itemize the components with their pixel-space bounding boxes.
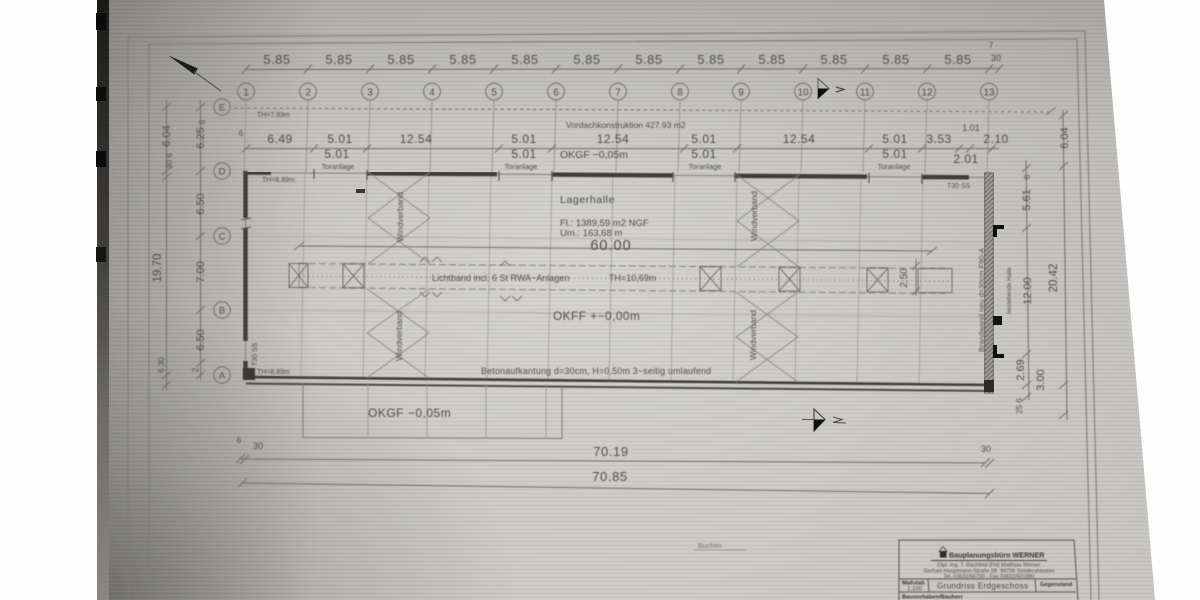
svg-text:3.00: 3.00 bbox=[1035, 369, 1047, 390]
svg-text:5.01: 5.01 bbox=[882, 147, 907, 161]
svg-text:5.85: 5.85 bbox=[635, 52, 662, 67]
svg-text:Vordachkonstruktion 427.93 m2: Vordachkonstruktion 427.93 m2 bbox=[566, 120, 686, 130]
svg-text:TH=10,69m: TH=10,69m bbox=[609, 273, 656, 283]
svg-text:Bauplanungsbüro WERNER: Bauplanungsbüro WERNER bbox=[949, 551, 1045, 560]
svg-text:Bauvorhaben/Bauherr: Bauvorhaben/Bauherr bbox=[902, 595, 964, 600]
svg-text:1: 1 bbox=[243, 88, 249, 99]
svg-text:4: 4 bbox=[429, 88, 435, 99]
svg-text:2.69: 2.69 bbox=[1015, 359, 1027, 380]
svg-text:5.85: 5.85 bbox=[944, 52, 971, 67]
svg-text:5.85: 5.85 bbox=[511, 52, 538, 67]
svg-text:1.01: 1.01 bbox=[962, 123, 980, 133]
svg-text:Windverband: Windverband bbox=[749, 191, 759, 241]
svg-text:TH=8.89m: TH=8.89m bbox=[257, 369, 290, 376]
svg-text:7.00: 7.00 bbox=[195, 261, 207, 282]
svg-text:A: A bbox=[219, 371, 226, 382]
svg-text:20.42: 20.42 bbox=[1048, 264, 1060, 293]
svg-text:6.50: 6.50 bbox=[195, 193, 207, 214]
svg-text:1:100: 1:100 bbox=[907, 587, 923, 593]
svg-text:Brandwand neu d=30cm F90-A: Brandwand neu d=30cm F90-A bbox=[977, 248, 986, 352]
svg-text:5.85: 5.85 bbox=[263, 52, 290, 67]
svg-text:6.25: 6.25 bbox=[195, 127, 207, 148]
svg-text:5.85: 5.85 bbox=[573, 52, 600, 67]
svg-text:2: 2 bbox=[305, 88, 311, 99]
svg-text:Toranlage: Toranlage bbox=[505, 162, 538, 171]
svg-text:Gegenstand: Gegenstand bbox=[1040, 582, 1073, 588]
svg-text:2.10: 2.10 bbox=[983, 132, 1008, 146]
svg-text:12.00: 12.00 bbox=[1022, 277, 1034, 305]
svg-text:B: B bbox=[219, 306, 225, 317]
svg-text:2.01: 2.01 bbox=[953, 152, 978, 166]
svg-text:2.50: 2.50 bbox=[899, 268, 910, 288]
svg-text:6.04: 6.04 bbox=[1059, 127, 1071, 148]
svg-text:8: 8 bbox=[677, 88, 683, 99]
svg-text:OKGF −0,05m: OKGF −0,05m bbox=[560, 149, 628, 161]
svg-text:Toranlage: Toranlage bbox=[689, 162, 722, 171]
svg-text:2: 2 bbox=[191, 367, 200, 372]
svg-text:6: 6 bbox=[198, 119, 207, 124]
svg-text:3: 3 bbox=[367, 88, 373, 99]
svg-text:Um.: 163,68 m: Um.: 163,68 m bbox=[560, 228, 622, 239]
svg-text:6.50: 6.50 bbox=[195, 329, 207, 350]
svg-text:5.85: 5.85 bbox=[882, 52, 909, 67]
svg-text:6: 6 bbox=[1023, 174, 1032, 179]
svg-text:5.85: 5.85 bbox=[325, 52, 352, 67]
svg-text:T30 SS: T30 SS bbox=[252, 342, 259, 366]
svg-text:Buchen: Buchen bbox=[698, 543, 722, 550]
svg-text:TH=7.83m: TH=7.83m bbox=[257, 112, 290, 119]
svg-text:30: 30 bbox=[991, 53, 1001, 63]
svg-text:12.54: 12.54 bbox=[783, 132, 816, 146]
svg-text:5.85: 5.85 bbox=[820, 52, 847, 67]
svg-text:Lagerhalle: Lagerhalle bbox=[560, 194, 615, 206]
svg-text:12: 12 bbox=[921, 88, 933, 99]
svg-text:6: 6 bbox=[553, 88, 559, 99]
svg-text:D: D bbox=[219, 167, 226, 178]
svg-text:70.19: 70.19 bbox=[593, 444, 629, 459]
svg-text:Toranlage: Toranlage bbox=[878, 162, 911, 171]
svg-text:T30 SS: T30 SS bbox=[947, 183, 971, 190]
svg-text:12.54: 12.54 bbox=[597, 132, 630, 146]
svg-text:60.00: 60.00 bbox=[590, 238, 631, 254]
svg-text:5.01: 5.01 bbox=[327, 132, 352, 146]
svg-text:5.01: 5.01 bbox=[691, 132, 716, 146]
svg-text:25 6: 25 6 bbox=[1015, 398, 1024, 414]
svg-text:3.53: 3.53 bbox=[926, 132, 951, 146]
svg-text:6 30: 6 30 bbox=[157, 357, 166, 373]
svg-text:5.01: 5.01 bbox=[324, 147, 349, 161]
svg-text:30 6: 30 6 bbox=[165, 153, 174, 169]
svg-text:5.01: 5.01 bbox=[511, 147, 536, 161]
svg-text:Betonaufkantung d=30cm, H=0,50: Betonaufkantung d=30cm, H=0,50m 3−seitig… bbox=[481, 366, 711, 376]
svg-text:Lichtband incl. 6 St RWA−Anlag: Lichtband incl. 6 St RWA−Anlagen bbox=[432, 273, 569, 283]
svg-text:7: 7 bbox=[989, 41, 994, 50]
svg-text:E: E bbox=[219, 103, 225, 114]
svg-text:5.01: 5.01 bbox=[691, 147, 716, 161]
svg-text:9: 9 bbox=[738, 88, 744, 99]
svg-text:30: 30 bbox=[981, 444, 991, 454]
svg-text:5.01: 5.01 bbox=[511, 132, 536, 146]
svg-text:6.49: 6.49 bbox=[267, 132, 292, 146]
svg-text:OKGF −0,05m: OKGF −0,05m bbox=[368, 406, 451, 420]
svg-text:5.61: 5.61 bbox=[1021, 189, 1033, 210]
svg-text:OKFF +−0,00m: OKFF +−0,00m bbox=[553, 309, 640, 323]
svg-text:5.85: 5.85 bbox=[449, 52, 476, 67]
svg-text:12.54: 12.54 bbox=[400, 132, 433, 146]
svg-text:10: 10 bbox=[797, 88, 809, 99]
svg-text:6.04: 6.04 bbox=[161, 125, 173, 146]
svg-text:TH=8.89m: TH=8.89m bbox=[262, 177, 295, 184]
svg-text:5.85: 5.85 bbox=[758, 52, 785, 67]
svg-text:Grundriss Erdgeschoss: Grundriss Erdgeschoss bbox=[937, 582, 1028, 591]
svg-text:Tel. 03632/66700 · Fax 03632/6: Tel. 03632/66700 · Fax 03632/601880 bbox=[943, 574, 1034, 580]
svg-text:30: 30 bbox=[253, 441, 263, 451]
svg-text:bestehende Halle: bestehende Halle bbox=[1007, 267, 1013, 314]
svg-text:19.70: 19.70 bbox=[152, 254, 164, 283]
svg-text:5.85: 5.85 bbox=[697, 52, 724, 67]
svg-text:Windverband: Windverband bbox=[395, 192, 405, 242]
svg-text:70.85: 70.85 bbox=[592, 469, 628, 484]
svg-text:6: 6 bbox=[237, 436, 242, 445]
svg-text:5.01: 5.01 bbox=[882, 132, 907, 146]
svg-text:Windverband: Windverband bbox=[748, 310, 758, 360]
svg-text:Toranlage: Toranlage bbox=[322, 162, 355, 171]
svg-text:13: 13 bbox=[983, 88, 995, 99]
svg-text:C: C bbox=[219, 232, 226, 243]
svg-text:5.85: 5.85 bbox=[387, 52, 414, 67]
svg-text:7: 7 bbox=[615, 88, 621, 99]
svg-text:5: 5 bbox=[491, 88, 497, 99]
svg-text:6: 6 bbox=[239, 129, 244, 138]
svg-text:Windverband: Windverband bbox=[394, 311, 404, 361]
svg-text:11: 11 bbox=[860, 88, 871, 99]
